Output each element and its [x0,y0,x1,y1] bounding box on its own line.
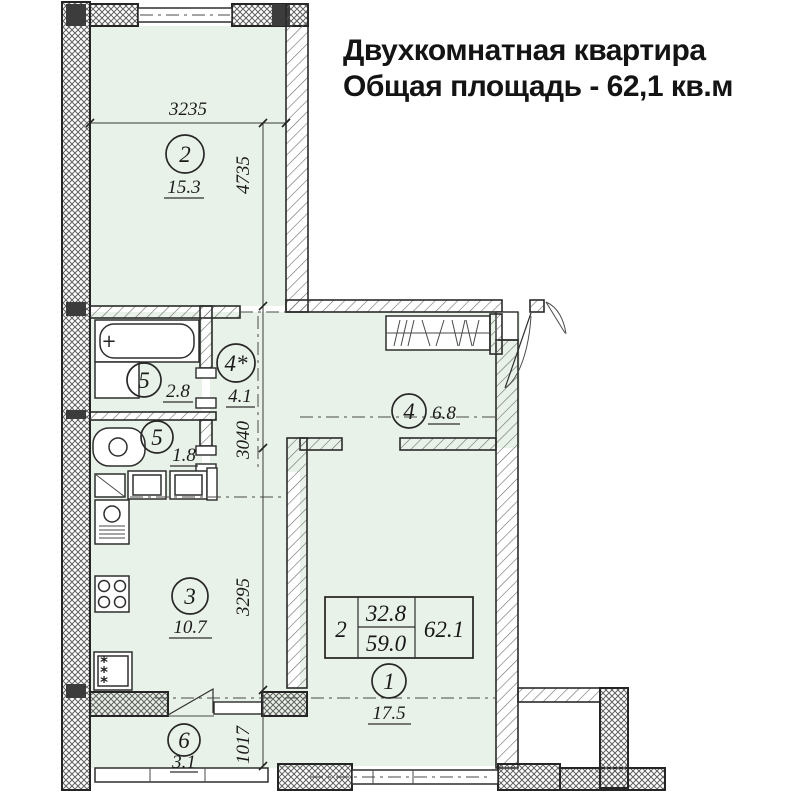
room-number: 3 [183,584,196,609]
room-area: 15.3 [167,177,200,198]
wall-junction-block [66,410,86,419]
table-total-area: 62.1 [424,617,464,642]
floor-plan-page: Двухкомнатная квартира Общая площадь - 6… [0,0,800,800]
adjacent-exterior-wall [600,688,628,788]
wc-sink-icon [93,428,145,466]
corridor-living-wall-right [400,438,496,450]
entrance-stub [530,300,544,312]
bath-door-jamb [196,398,216,408]
room-area: 4.1 [228,386,252,407]
table-living-area: 32.8 [365,601,407,626]
wall-junction-block [66,302,86,316]
wall-junction-block [66,4,86,26]
bottom-wall-block [498,764,560,790]
kitchen-sink-icon [95,500,129,544]
hall-top-wall [286,300,502,312]
top-wall-left [90,4,138,26]
room2-right-wall [286,4,308,312]
dim-hall-depth: 3040 [233,421,254,461]
stove-icon [95,576,129,612]
kitchen-living-wall [287,438,307,688]
room-number: 5 [151,425,163,450]
room-number: 4 [403,399,415,424]
dim-balcony-depth: 1017 [233,725,254,765]
wc-right-wall [200,420,212,446]
adjacent-wall [518,688,600,702]
balcony-parapet [90,692,168,716]
wall-junction-block [66,684,86,698]
room-area: 3.1 [171,752,196,773]
dim-room2-width: 3235 [168,99,207,120]
table-rooms-count: 2 [335,617,347,642]
room-area: 2.8 [166,381,190,402]
room-number: 5 [138,368,150,393]
dim-room2-depth: 4735 [233,156,254,194]
wardrobe-icon [386,314,502,354]
left-exterior-wall [62,2,90,790]
bath-wc-divider [90,412,216,420]
room-number: 6 [178,728,190,753]
tap-mark: + [101,331,116,352]
room-number: 2 [179,142,191,167]
area-table: 2 32.8 59.0 62.1 [325,597,473,658]
room2-bath-wall [90,306,240,318]
dim-kitchen-depth: 3295 [233,578,254,617]
vent-mark: * [100,673,108,691]
room-area: 17.5 [372,703,405,724]
bathtub-icon: + [95,320,199,362]
right-wall [496,340,518,768]
balcony-parapet [262,692,307,716]
fridge-icon: * * * [94,652,132,691]
room-area: 6.8 [432,403,456,424]
room-number: 4* [225,351,249,376]
room-number: 1 [383,669,395,694]
room-area: 1.8 [172,445,196,466]
balcony-sill [214,702,262,714]
bath-right-wall [200,306,212,368]
table-area-without-balcony: 59.0 [366,631,407,656]
room-area: 10.7 [173,617,208,638]
floor-plan-drawing: + [0,0,800,800]
bath-door-jamb [196,368,216,378]
wc-door-jamb [196,446,216,455]
